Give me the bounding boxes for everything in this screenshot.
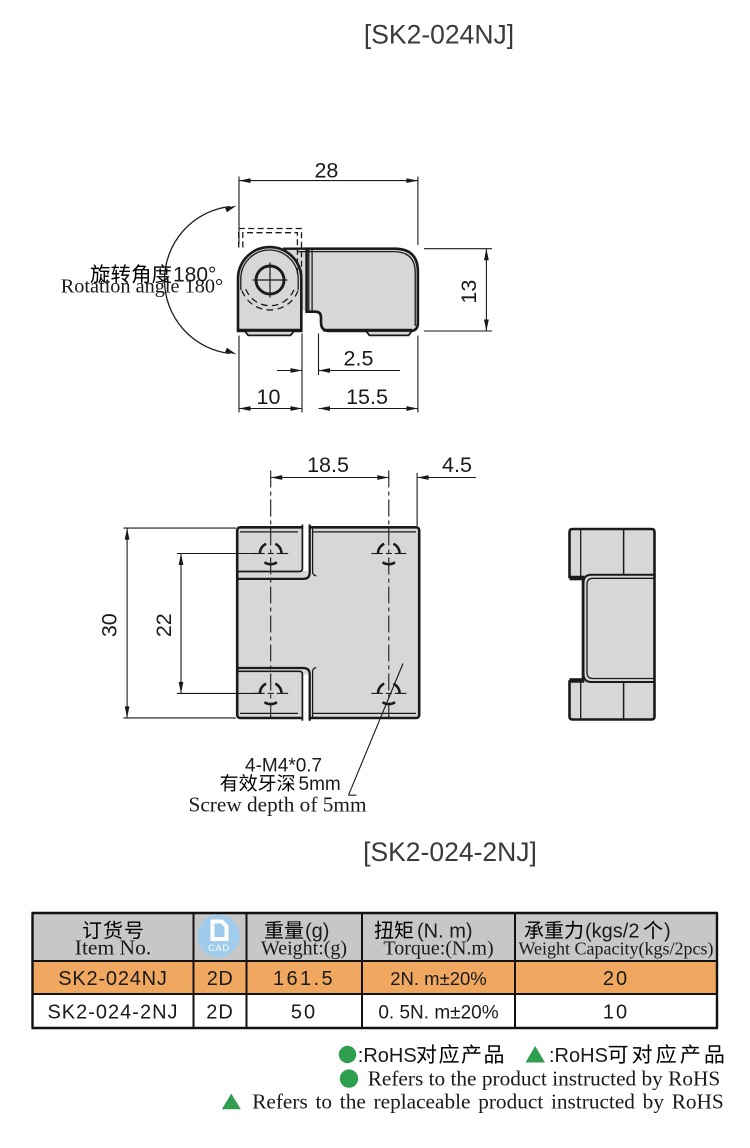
svg-text::RoHS: :RoHS [549, 1045, 608, 1067]
svg-text:18.5: 18.5 [307, 453, 349, 477]
svg-text:[SK2-024-2NJ]: [SK2-024-2NJ] [363, 837, 537, 867]
svg-text:Refers to the replaceable prod: Refers to the replaceable product instru… [252, 1090, 724, 1114]
svg-text:4.5: 4.5 [442, 453, 472, 477]
svg-text:Weight Capacity(kgs/2pcs): Weight Capacity(kgs/2pcs) [518, 939, 713, 960]
svg-text:2N. m±20%: 2N. m±20% [390, 968, 487, 989]
svg-text:10: 10 [603, 1002, 629, 1024]
svg-text:20: 20 [603, 968, 629, 990]
svg-text:Refers to the product instruct: Refers to the product instructed by RoHS [368, 1067, 721, 1091]
svg-text:10: 10 [257, 385, 281, 409]
svg-text:0. 5N. m±20%: 0. 5N. m±20% [378, 1003, 498, 1024]
svg-text:2D: 2D [206, 1002, 234, 1024]
svg-text:Screw depth of 5mm: Screw depth of 5mm [188, 793, 366, 817]
svg-text:Rotation angle 180°: Rotation angle 180° [61, 276, 223, 298]
svg-text:22: 22 [152, 613, 176, 637]
svg-text:Item No.: Item No. [75, 936, 151, 960]
svg-text:13: 13 [457, 280, 481, 304]
svg-text:2.5: 2.5 [344, 347, 374, 371]
svg-text:[SK2-024NJ]: [SK2-024NJ] [364, 20, 514, 50]
svg-text:CAD: CAD [208, 943, 230, 953]
svg-text:Weight:(g): Weight:(g) [261, 938, 347, 960]
svg-text:161.5: 161.5 [273, 968, 335, 990]
svg-text:50: 50 [291, 1002, 317, 1024]
svg-text:SK2-024NJ: SK2-024NJ [58, 968, 167, 990]
svg-text:2D: 2D [207, 968, 234, 990]
svg-text:30: 30 [98, 613, 122, 637]
svg-text:SK2-024-2NJ: SK2-024-2NJ [47, 1002, 178, 1024]
svg-text::RoHS: :RoHS [358, 1045, 417, 1067]
svg-text:Torque:(N.m): Torque:(N.m) [383, 938, 493, 960]
svg-text:15.5: 15.5 [346, 385, 388, 409]
svg-text:28: 28 [314, 159, 338, 183]
